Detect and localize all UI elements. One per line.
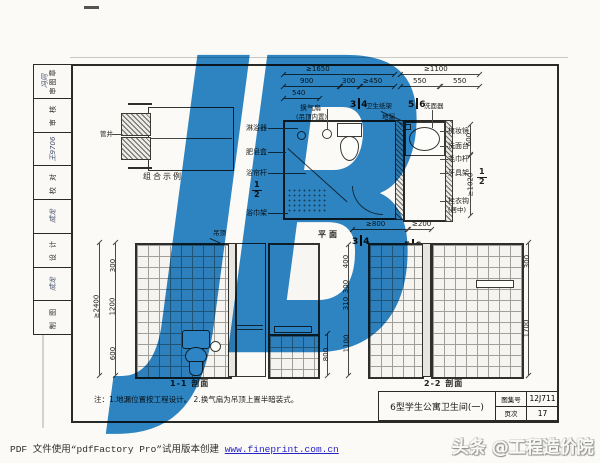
dim-line: [283, 86, 340, 87]
dim-line: [440, 86, 480, 87]
label-fan: 换气扇: [300, 105, 321, 112]
section11-shelf-line: [237, 325, 263, 326]
drawing-note: 注：1.地漏位置按工程设计。 2.换气扇为吊顶上置半暗装式。: [94, 396, 298, 404]
dim-550b: 550: [453, 78, 466, 85]
title-strip: 审图章 冯同 审 核 王9706 校 对 成龙 设 计 成龙 制 图: [33, 64, 73, 335]
strip-label: 校 对: [48, 172, 58, 194]
strip-cell: 制 图: [34, 301, 72, 334]
toilet-tank-plan: [337, 123, 362, 137]
strip-signature: 王9706: [48, 136, 58, 161]
strip-label: 制 图: [48, 307, 58, 329]
scan-edge-line: [70, 57, 568, 58]
fineprint-link[interactable]: www.fineprint.com.cn: [225, 444, 339, 455]
scanned-drawing-sheet: 审图章 冯同 审 核 王9706 校 对 成龙 设 计 成龙 制 图 管井: [0, 0, 600, 463]
atlas-number-label: 图集号: [496, 392, 527, 406]
shower-floor-tiles: [287, 188, 327, 212]
dim-550a: 550: [413, 78, 426, 85]
dim-line: [408, 229, 432, 230]
section22-partition: [422, 243, 431, 377]
combo-unit-top: [121, 113, 151, 136]
section11-shelf-line2: [237, 329, 263, 330]
dim-1700: 1700: [523, 320, 530, 338]
dim-line: [360, 86, 395, 87]
atlas-number-value: 12J711: [527, 392, 558, 406]
detail-ref-fraction-right: 12: [477, 168, 487, 187]
plan-caption: 平面: [318, 231, 340, 239]
dim-line: [400, 74, 480, 75]
scan-mark: [84, 6, 99, 9]
dim-line: [283, 98, 320, 99]
mid-towel-bar: [274, 326, 312, 333]
label-paper-holder: 卫生纸架: [366, 103, 392, 110]
section11-caption: 1-1 剖面: [170, 380, 209, 388]
pdf-trial-notice: PDF 文件使用“pdfFactory Pro”试用版本创建 www.finep…: [10, 441, 339, 455]
combo-outline: [148, 107, 234, 171]
dim-1020: ≥1020: [467, 173, 474, 197]
dim-300: 300: [342, 78, 355, 85]
section-mark-3-4-bottom: 34: [352, 229, 370, 248]
label-fan-note: (吊顶内置): [296, 114, 327, 121]
section-mark-3-4: 34: [350, 92, 368, 111]
dim-600: 600: [466, 133, 473, 146]
shaft-leader: [112, 134, 121, 135]
toilet-base-elev: [189, 361, 203, 376]
leader: [327, 109, 328, 129]
label-shower: 淋浴器: [246, 125, 267, 132]
page-number-value: 17: [527, 407, 558, 421]
label-curtain: 浴帘杆: [246, 170, 267, 177]
strip-cell: 王9706: [34, 133, 72, 167]
dim-1650: ≥1650: [306, 66, 330, 73]
dim-2400: ≥2400: [93, 295, 100, 319]
dim-1100b: 1100: [343, 335, 350, 353]
leader: [440, 201, 448, 202]
label-towel-rack: 浴巾架: [246, 210, 267, 217]
dim-300b: 300: [343, 280, 350, 293]
section11-side-room: [236, 243, 266, 377]
leader: [268, 128, 298, 129]
strip-signature: 成龙: [48, 277, 58, 291]
strip-cell: 成龙: [34, 200, 72, 234]
leader: [268, 213, 288, 214]
dim-200min: ≥200: [412, 221, 431, 228]
title-block-grid: 图集号 12J711 页次 17: [495, 392, 558, 420]
dim-600b: 600: [110, 347, 117, 360]
title-block: 6型学生公寓卫生间(一) 图集号 12J711 页次 17: [378, 391, 559, 421]
section22-towel-bar: [476, 280, 514, 288]
basin-bowl-plan: [409, 127, 440, 151]
leader: [440, 173, 448, 174]
dim-line: [283, 74, 395, 75]
dim-1200: 1200: [109, 298, 116, 316]
label-basin: 洗面器: [424, 103, 444, 110]
leader: [440, 131, 448, 132]
label-floor-drain: 地漏: [382, 114, 395, 121]
label-hook: 挂衣钩: [448, 198, 469, 205]
strip-signature: 冯同: [40, 74, 50, 88]
dim-300a: 300: [110, 259, 117, 272]
label-ceiling: 吊顶: [213, 230, 226, 237]
section22-main-wall: [431, 243, 524, 379]
combo-divider: [148, 138, 232, 139]
strip-signature: 成龙: [48, 209, 58, 223]
dim-800min: ≥800: [366, 221, 385, 228]
leader: [440, 146, 448, 147]
dim-1100: ≥1100: [424, 66, 448, 73]
dim-900: 900: [300, 78, 313, 85]
strip-label: 设 计: [48, 239, 58, 261]
paper-roll-elev: [210, 341, 221, 352]
section11-partition: [228, 243, 236, 377]
exhaust-fan-symbol: [322, 129, 332, 139]
strip-cell: 审 核: [34, 99, 72, 133]
section22-caption: 2-2 剖面: [424, 380, 463, 388]
strip-label: 审 核: [48, 104, 58, 126]
page-number-label: 页次: [496, 407, 527, 421]
label-towel-bar: 毛巾杆: [448, 156, 469, 163]
dim-400: 400: [343, 255, 350, 268]
dim-line: [400, 86, 440, 87]
dim-800: 800: [323, 348, 330, 361]
strip-cell: 设 计: [34, 234, 72, 268]
dim-540: 540: [292, 90, 305, 97]
label-hook-note: (居中): [448, 207, 466, 214]
combo-caption: 组合示例: [143, 173, 183, 181]
combo-unit-bottom: [121, 137, 151, 160]
leader: [268, 152, 286, 153]
dim-310: 310: [343, 297, 350, 310]
drawing-title: 6型学生公寓卫生间(一): [379, 392, 495, 420]
label-soap: 肥皂盒: [246, 149, 267, 156]
leader: [440, 159, 448, 160]
dim-300c: 300: [524, 255, 531, 268]
leader: [432, 110, 433, 128]
section22-left-wall: [368, 243, 424, 379]
toutiao-watermark: 头条 @工程造价院: [452, 433, 594, 458]
shower-head-symbol: [297, 131, 306, 140]
strip-cell: 成龙: [34, 268, 72, 302]
strip-cell: 校 对: [34, 166, 72, 200]
section11-tiled-wall: [135, 243, 232, 379]
detail-ref-fraction-left: 12: [252, 181, 262, 200]
section-mark-5-6: 56: [408, 92, 426, 111]
combo-stub-bottom: [128, 167, 152, 169]
leader: [268, 173, 306, 174]
combo-stub-top: [128, 103, 152, 105]
pdf-trial-text: PDF 文件使用“pdfFactory Pro”试用版本创建: [10, 444, 225, 455]
dim-line: [340, 86, 360, 87]
mid-wall-tiles: [268, 334, 320, 379]
dim-450: ≥450: [363, 78, 382, 85]
strip-cell: 审图章 冯同: [34, 65, 72, 99]
